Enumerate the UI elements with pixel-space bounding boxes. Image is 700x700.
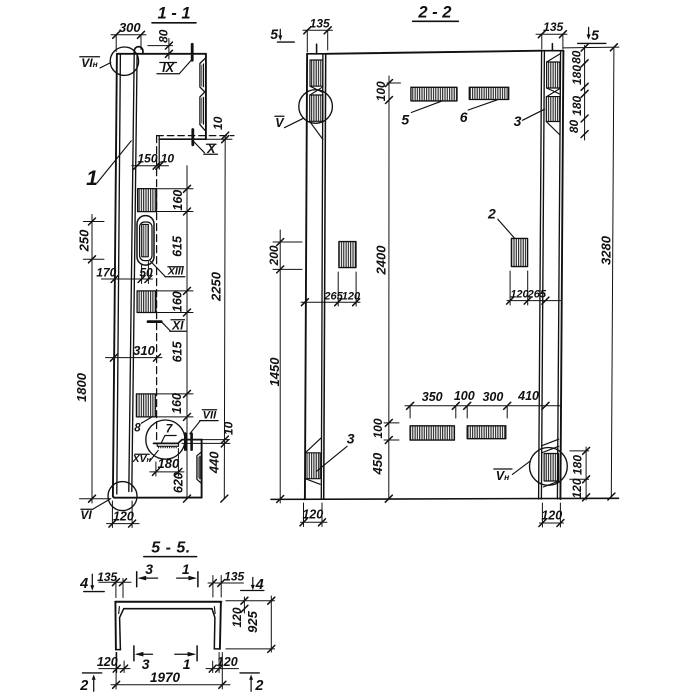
svg-text:120: 120: [570, 478, 584, 498]
svg-text:120: 120: [342, 291, 361, 303]
svg-text:410: 410: [517, 389, 539, 403]
svg-text:265: 265: [323, 291, 343, 303]
svg-text:180: 180: [571, 455, 585, 475]
svg-text:300: 300: [482, 390, 503, 404]
svg-text:2250: 2250: [208, 271, 223, 302]
svg-text:200: 200: [267, 245, 281, 266]
svg-text:120: 120: [230, 607, 244, 627]
svg-text:120: 120: [302, 507, 323, 521]
svg-text:5: 5: [270, 26, 278, 42]
svg-text:135: 135: [543, 20, 563, 34]
svg-text:2: 2: [254, 678, 263, 694]
svg-text:50: 50: [139, 265, 153, 279]
svg-text:2400: 2400: [373, 245, 388, 276]
svg-text:80: 80: [156, 29, 170, 43]
svg-text:Vн: Vн: [496, 469, 509, 483]
svg-text:135: 135: [224, 569, 244, 583]
svg-text:120: 120: [113, 509, 134, 523]
svg-text:3: 3: [145, 561, 153, 577]
svg-text:4: 4: [79, 576, 88, 592]
svg-text:615: 615: [170, 341, 184, 363]
svg-text:180: 180: [570, 65, 584, 85]
svg-text:V: V: [275, 116, 285, 130]
svg-text:170: 170: [96, 266, 116, 280]
svg-text:10: 10: [211, 116, 225, 130]
svg-text:6: 6: [460, 109, 468, 125]
svg-text:100: 100: [371, 418, 385, 438]
svg-text:180: 180: [158, 456, 180, 471]
svg-text:2 - 2: 2 - 2: [417, 4, 451, 22]
svg-text:100: 100: [374, 81, 388, 101]
svg-text:2: 2: [79, 678, 88, 694]
svg-text:1: 1: [86, 167, 98, 190]
svg-text:10: 10: [222, 421, 236, 435]
svg-text:IX: IX: [162, 61, 174, 75]
svg-text:5: 5: [591, 27, 599, 43]
svg-text:160: 160: [170, 291, 184, 312]
svg-text:7: 7: [166, 421, 174, 435]
svg-text:1: 1: [182, 561, 190, 577]
svg-text:10: 10: [161, 151, 175, 165]
svg-text:XIII: XIII: [167, 266, 185, 278]
svg-text:250: 250: [76, 229, 91, 252]
svg-text:2: 2: [487, 205, 496, 221]
svg-text:450: 450: [370, 452, 385, 475]
svg-text:3: 3: [142, 656, 150, 672]
svg-text:3: 3: [347, 430, 355, 446]
svg-text:160: 160: [170, 393, 184, 414]
svg-text:300: 300: [119, 20, 141, 35]
svg-text:1: 1: [183, 656, 191, 672]
svg-text:135: 135: [310, 16, 330, 30]
svg-text:150: 150: [137, 152, 157, 166]
svg-text:350: 350: [422, 390, 443, 404]
svg-text:615: 615: [171, 235, 185, 257]
svg-text:8: 8: [134, 422, 141, 434]
svg-text:80: 80: [567, 120, 581, 134]
svg-text:5 - 5.: 5 - 5.: [151, 540, 190, 557]
svg-text:1970: 1970: [150, 670, 181, 685]
svg-text:265: 265: [527, 289, 547, 301]
svg-text:80: 80: [570, 50, 584, 64]
svg-text:XI: XI: [171, 319, 184, 333]
svg-text:1800: 1800: [74, 372, 89, 402]
svg-text:VIн: VIн: [81, 56, 97, 70]
svg-text:120: 120: [97, 655, 118, 669]
svg-text:925: 925: [245, 610, 260, 632]
svg-text:5: 5: [401, 111, 409, 127]
svg-text:160: 160: [171, 190, 185, 211]
svg-text:VI: VI: [80, 508, 92, 522]
svg-text:VII: VII: [203, 409, 217, 421]
svg-text:1 - 1: 1 - 1: [157, 5, 190, 23]
svg-text:100: 100: [454, 389, 475, 403]
svg-text:180: 180: [570, 95, 584, 115]
svg-text:310: 310: [133, 343, 155, 358]
svg-text:1450: 1450: [267, 357, 282, 387]
svg-text:440: 440: [207, 451, 222, 474]
svg-text:XVн: XVн: [132, 453, 152, 465]
svg-text:3: 3: [514, 113, 522, 129]
svg-text:3280: 3280: [599, 235, 614, 265]
